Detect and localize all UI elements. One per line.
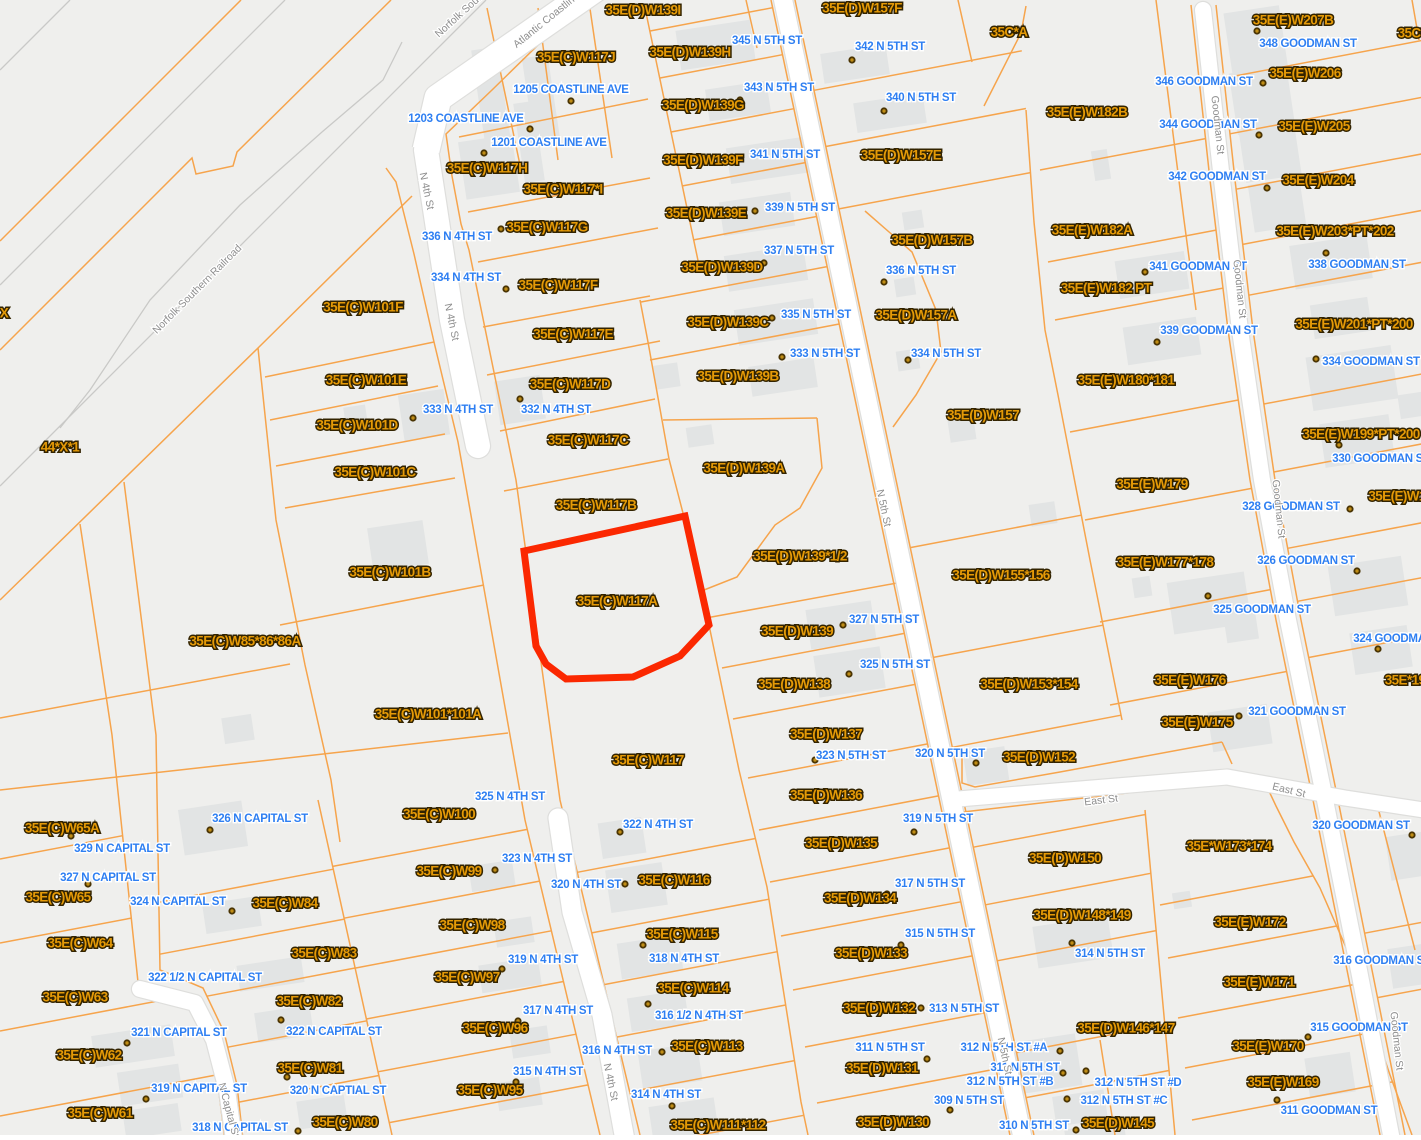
svg-text:35E(D)W139F: 35E(D)W139F xyxy=(663,153,743,168)
svg-text:35E(D)W133: 35E(D)W133 xyxy=(835,946,908,961)
svg-text:333 N 4TH ST: 333 N 4TH ST xyxy=(423,404,493,416)
svg-text:35E(C)W101B: 35E(C)W101B xyxy=(349,565,431,580)
svg-text:311 GOODMAN ST: 311 GOODMAN ST xyxy=(1281,1105,1378,1117)
svg-text:35E(D)W157B: 35E(D)W157B xyxy=(891,233,973,248)
svg-text:325 GOODMAN ST: 325 GOODMAN ST xyxy=(1213,604,1311,616)
svg-text:324 GOODMAN ST: 324 GOODMAN ST xyxy=(1353,633,1421,645)
svg-text:35E(C)W98: 35E(C)W98 xyxy=(439,918,505,933)
svg-text:35E(C)W101*101A: 35E(C)W101*101A xyxy=(375,707,482,722)
svg-text:35E(C)W117H: 35E(C)W117H xyxy=(447,161,527,176)
svg-text:312 N 5TH ST #B: 312 N 5TH ST #B xyxy=(967,1076,1054,1088)
svg-text:35E(D)W155*156: 35E(D)W155*156 xyxy=(952,568,1050,583)
svg-text:320 N CAPTIAL ST: 320 N CAPTIAL ST xyxy=(290,1085,387,1097)
svg-text:35E(E)W179: 35E(E)W179 xyxy=(1116,477,1187,492)
svg-text:35E(D)W137: 35E(D)W137 xyxy=(790,727,862,742)
svg-text:334 N 5TH ST: 334 N 5TH ST xyxy=(911,348,981,360)
svg-text:309 N 5TH ST: 309 N 5TH ST xyxy=(934,1095,1004,1107)
svg-text:343 N 5TH ST: 343 N 5TH ST xyxy=(744,82,814,94)
svg-text:35E(C)W113: 35E(C)W113 xyxy=(671,1039,743,1054)
svg-text:35E(C)W117G: 35E(C)W117G xyxy=(506,220,587,235)
svg-text:334 N 4TH ST: 334 N 4TH ST xyxy=(431,272,501,284)
svg-text:322 N 4TH ST: 322 N 4TH ST xyxy=(623,819,693,831)
svg-text:336 N 5TH ST: 336 N 5TH ST xyxy=(886,265,956,277)
svg-text:326 N CAPITAL ST: 326 N CAPITAL ST xyxy=(212,813,308,825)
svg-text:35E(D)W139B: 35E(D)W139B xyxy=(697,369,779,384)
svg-text:35E(C)W61: 35E(C)W61 xyxy=(67,1106,133,1121)
svg-text:325 N 4TH ST: 325 N 4TH ST xyxy=(475,791,545,803)
svg-text:35E(E)W176: 35E(E)W176 xyxy=(1154,673,1226,688)
svg-text:327 N CAPITAL ST: 327 N CAPITAL ST xyxy=(60,872,156,884)
svg-text:35E*W173*174: 35E*W173*174 xyxy=(1186,839,1272,854)
svg-text:35E(D)W157F: 35E(D)W157F xyxy=(822,1,902,16)
svg-text:324 N CAPITAL ST: 324 N CAPITAL ST xyxy=(130,896,226,908)
svg-text:35E(C)W65: 35E(C)W65 xyxy=(25,890,91,905)
svg-text:329 N CAPITAL ST: 329 N CAPITAL ST xyxy=(74,843,170,855)
svg-text:330 GOODMAN ST: 330 GOODMAN ST xyxy=(1332,453,1421,465)
svg-text:322 N CAPITAL ST: 322 N CAPITAL ST xyxy=(286,1026,382,1038)
svg-text:319 N CAPITAL ST: 319 N CAPITAL ST xyxy=(151,1083,247,1095)
svg-text:35E(C)W95: 35E(C)W95 xyxy=(457,1083,523,1098)
svg-text:35C*A: 35C*A xyxy=(991,25,1029,40)
svg-text:35E(D)W157: 35E(D)W157 xyxy=(947,408,1019,423)
svg-text:339 GOODMAN ST: 339 GOODMAN ST xyxy=(1160,325,1258,337)
svg-text:35E(D)W134: 35E(D)W134 xyxy=(824,891,897,906)
svg-text:35E(C)W84: 35E(C)W84 xyxy=(252,896,318,911)
svg-text:323 N 4TH ST: 323 N 4TH ST xyxy=(502,853,572,865)
svg-text:35E(C)W111*112: 35E(C)W111*112 xyxy=(670,1118,765,1133)
svg-text:336 N 4TH ST: 336 N 4TH ST xyxy=(422,231,492,243)
svg-text:35E(E)W182B: 35E(E)W182B xyxy=(1047,105,1128,120)
svg-text:320 N 4TH ST: 320 N 4TH ST xyxy=(551,879,621,891)
svg-text:321 N CAPITAL ST: 321 N CAPITAL ST xyxy=(131,1027,227,1039)
svg-text:35E(E)W199*PT*200: 35E(E)W199*PT*200 xyxy=(1302,427,1419,442)
svg-text:316 1/2 N 4TH ST: 316 1/2 N 4TH ST xyxy=(655,1010,743,1022)
svg-text:341 N 5TH ST: 341 N 5TH ST xyxy=(750,149,820,161)
svg-text:35E*1946: 35E*1946 xyxy=(1385,673,1421,688)
svg-text:35E(D)W130: 35E(D)W130 xyxy=(857,1115,929,1130)
svg-text:310 N 5TH ST: 310 N 5TH ST xyxy=(999,1120,1069,1132)
svg-text:35E(C)W117*I: 35E(C)W117*I xyxy=(523,182,602,197)
svg-text:X: X xyxy=(0,306,9,321)
svg-text:35E(C)W100: 35E(C)W100 xyxy=(403,807,475,822)
svg-text:35C*A: 35C*A xyxy=(1398,26,1421,41)
svg-text:35E(D)W145: 35E(D)W145 xyxy=(1082,1116,1155,1131)
svg-text:35E(D)W157E: 35E(D)W157E xyxy=(861,148,942,163)
svg-text:35E(E)W205: 35E(E)W205 xyxy=(1278,119,1350,134)
svg-text:35E(C)W101D: 35E(C)W101D xyxy=(316,418,398,433)
svg-text:35E(E)W169: 35E(E)W169 xyxy=(1247,1075,1318,1090)
svg-text:35E(C)W115: 35E(C)W115 xyxy=(646,927,718,942)
svg-text:318 N 4TH ST: 318 N 4TH ST xyxy=(649,953,719,965)
svg-text:326 GOODMAN ST: 326 GOODMAN ST xyxy=(1257,555,1355,567)
svg-text:317 N 4TH ST: 317 N 4TH ST xyxy=(523,1005,593,1017)
svg-text:35E(E)W201*PT*200: 35E(E)W201*PT*200 xyxy=(1295,317,1412,332)
svg-text:35E(C)W64: 35E(C)W64 xyxy=(47,936,113,951)
svg-text:35E(C)W114: 35E(C)W114 xyxy=(657,981,729,996)
svg-text:319 N 5TH ST: 319 N 5TH ST xyxy=(903,813,973,825)
svg-text:1201 COASTLINE AVE: 1201 COASTLINE AVE xyxy=(491,137,607,149)
svg-text:35E(C)W117C: 35E(C)W117C xyxy=(548,433,629,448)
svg-text:35E(E)W204: 35E(E)W204 xyxy=(1282,173,1354,188)
svg-text:35E(C)W97: 35E(C)W97 xyxy=(434,970,499,985)
svg-text:44*X*1: 44*X*1 xyxy=(41,440,81,455)
svg-text:315 N 5TH ST: 315 N 5TH ST xyxy=(905,928,975,940)
svg-text:35E(D)W136: 35E(D)W136 xyxy=(790,788,863,803)
svg-text:35E(C)W81: 35E(C)W81 xyxy=(277,1061,343,1076)
svg-text:344 GOODMAN ST: 344 GOODMAN ST xyxy=(1159,119,1257,131)
svg-text:35E(C)W117F: 35E(C)W117F xyxy=(519,278,598,293)
svg-text:339 N 5TH ST: 339 N 5TH ST xyxy=(765,202,835,214)
svg-text:312 N 5TH ST #C: 312 N 5TH ST #C xyxy=(1081,1095,1168,1107)
svg-text:35E(E)W203*PT*202: 35E(E)W203*PT*202 xyxy=(1276,224,1393,239)
svg-text:35E(D)W139: 35E(D)W139 xyxy=(761,624,833,639)
svg-text:314 N 5TH ST: 314 N 5TH ST xyxy=(1075,948,1145,960)
svg-text:335 N 5TH ST: 335 N 5TH ST xyxy=(781,309,851,321)
svg-text:35E(C)W116: 35E(C)W116 xyxy=(638,873,710,888)
svg-text:35E(C)W65A: 35E(C)W65A xyxy=(25,821,100,836)
svg-text:35E(D)W138: 35E(D)W138 xyxy=(758,677,831,692)
svg-text:35E(E)W206: 35E(E)W206 xyxy=(1269,66,1341,81)
svg-text:35E(C)W83: 35E(C)W83 xyxy=(291,946,357,961)
svg-text:35E(D)W139*1/2: 35E(D)W139*1/2 xyxy=(753,549,847,564)
svg-text:328 GOODMAN ST: 328 GOODMAN ST xyxy=(1242,501,1340,513)
svg-text:327 N 5TH ST: 327 N 5TH ST xyxy=(849,614,919,626)
svg-text:322 1/2 N CAPITAL ST: 322 1/2 N CAPITAL ST xyxy=(148,972,262,984)
svg-text:320 GOODMAN ST: 320 GOODMAN ST xyxy=(1312,820,1410,832)
svg-text:321 GOODMAN ST: 321 GOODMAN ST xyxy=(1248,706,1346,718)
svg-text:35E(D)W135: 35E(D)W135 xyxy=(805,836,878,851)
svg-text:35E(E)W182A: 35E(E)W182A xyxy=(1052,223,1133,238)
svg-text:325 N 5TH ST: 325 N 5TH ST xyxy=(860,659,930,671)
svg-text:35E(D)W139H: 35E(D)W139H xyxy=(649,45,730,60)
svg-text:338 GOODMAN ST: 338 GOODMAN ST xyxy=(1308,259,1406,271)
svg-text:315 N 4TH ST: 315 N 4TH ST xyxy=(513,1066,583,1078)
svg-text:35E(D)W139A: 35E(D)W139A xyxy=(703,461,785,476)
svg-text:35E(C)W101E: 35E(C)W101E xyxy=(326,373,407,388)
svg-text:320 N 5TH ST: 320 N 5TH ST xyxy=(915,748,985,760)
svg-text:35E(D)W139D: 35E(D)W139D xyxy=(681,260,763,275)
svg-text:35E(D)W139E: 35E(D)W139E xyxy=(666,206,747,221)
svg-text:323 N 5TH ST: 323 N 5TH ST xyxy=(816,750,886,762)
svg-text:35E(D)W150: 35E(D)W150 xyxy=(1029,851,1101,866)
svg-text:317 N 5TH ST: 317 N 5TH ST xyxy=(895,878,965,890)
svg-text:35E(C)W117D: 35E(C)W117D xyxy=(530,377,611,392)
svg-text:35E(D)W139I: 35E(D)W139I xyxy=(605,3,680,18)
svg-text:35E(C)W82: 35E(C)W82 xyxy=(276,994,341,1009)
svg-text:319 N 4TH ST: 319 N 4TH ST xyxy=(508,954,578,966)
svg-text:35E(E)W177*178: 35E(E)W177*178 xyxy=(1117,555,1215,570)
svg-text:316 GOODMAN ST: 316 GOODMAN ST xyxy=(1333,955,1421,967)
svg-text:313 N 5TH ST: 313 N 5TH ST xyxy=(929,1003,999,1015)
svg-text:35E(E)W170: 35E(E)W170 xyxy=(1232,1039,1303,1054)
svg-text:340 N 5TH ST: 340 N 5TH ST xyxy=(886,92,956,104)
svg-text:332 N 4TH ST: 332 N 4TH ST xyxy=(521,404,591,416)
svg-text:1203 COASTLINE AVE: 1203 COASTLINE AVE xyxy=(408,113,524,125)
svg-text:1205 COASTLINE AVE: 1205 COASTLINE AVE xyxy=(513,84,629,96)
svg-text:316 N 4TH ST: 316 N 4TH ST xyxy=(582,1045,652,1057)
svg-text:35E(D)W139G: 35E(D)W139G xyxy=(662,98,744,113)
svg-text:35E(E)W175: 35E(E)W175 xyxy=(1161,715,1233,730)
svg-text:35E(D)W139C: 35E(D)W139C xyxy=(687,315,769,330)
svg-text:35E(C)W99: 35E(C)W99 xyxy=(416,864,481,879)
svg-text:345 N 5TH ST: 345 N 5TH ST xyxy=(732,35,802,47)
svg-text:337 N 5TH ST: 337 N 5TH ST xyxy=(764,245,834,257)
svg-text:35E(C)W62: 35E(C)W62 xyxy=(56,1048,121,1063)
svg-text:35E(D)W131: 35E(D)W131 xyxy=(846,1061,919,1076)
svg-text:342 N 5TH ST: 342 N 5TH ST xyxy=(855,41,925,53)
svg-text:314 N 4TH ST: 314 N 4TH ST xyxy=(631,1089,701,1101)
svg-text:35E(C)W85*86*86A: 35E(C)W85*86*86A xyxy=(189,634,301,649)
svg-text:35E(E)W182 PT: 35E(E)W182 PT xyxy=(1061,281,1153,296)
svg-text:35E(E)W180*181: 35E(E)W180*181 xyxy=(1078,373,1176,388)
svg-text:311 N 5TH ST: 311 N 5TH ST xyxy=(855,1042,925,1054)
svg-text:35E(C)W117B: 35E(C)W117B xyxy=(556,498,637,513)
svg-text:35E(C)W117: 35E(C)W117 xyxy=(612,753,683,768)
svg-text:35E(C)W101C: 35E(C)W101C xyxy=(334,465,416,480)
svg-text:35E(D)W152: 35E(D)W152 xyxy=(1003,750,1075,765)
svg-text:35E(D)W148*149: 35E(D)W148*149 xyxy=(1033,908,1130,923)
svg-text:35E(C)W117E: 35E(C)W117E xyxy=(533,327,613,342)
svg-text:35E(C)W101F: 35E(C)W101F xyxy=(323,300,403,315)
svg-text:35E(D)W153*154: 35E(D)W153*154 xyxy=(980,677,1078,692)
svg-text:348 GOODMAN ST: 348 GOODMAN ST xyxy=(1259,38,1357,50)
svg-text:35E(D)W157A: 35E(D)W157A xyxy=(875,308,957,323)
svg-text:35E(C)W63: 35E(C)W63 xyxy=(42,990,108,1005)
svg-text:35E(C)W117J: 35E(C)W117J xyxy=(537,50,615,65)
svg-text:35E(E)W198: 35E(E)W198 xyxy=(1368,489,1421,504)
svg-text:35E(C)W80: 35E(C)W80 xyxy=(312,1115,377,1130)
svg-text:346 GOODMAN ST: 346 GOODMAN ST xyxy=(1155,76,1253,88)
svg-text:312 N 5TH ST #D: 312 N 5TH ST #D xyxy=(1095,1077,1182,1089)
svg-text:333 N 5TH ST: 333 N 5TH ST xyxy=(790,348,860,360)
svg-text:334 GOODMAN ST: 334 GOODMAN ST xyxy=(1322,356,1420,368)
svg-text:35E(C)W117A: 35E(C)W117A xyxy=(577,594,658,609)
svg-text:35E(E)W171: 35E(E)W171 xyxy=(1223,975,1295,990)
svg-text:35E(E)W172: 35E(E)W172 xyxy=(1214,915,1285,930)
svg-text:35E(D)W132: 35E(D)W132 xyxy=(843,1001,915,1016)
svg-text:342 GOODMAN ST: 342 GOODMAN ST xyxy=(1168,171,1266,183)
svg-text:35E(E)W207B: 35E(E)W207B xyxy=(1253,13,1334,28)
svg-text:35E(C)W96: 35E(C)W96 xyxy=(462,1021,528,1036)
svg-text:35E(D)W146*147: 35E(D)W146*147 xyxy=(1077,1021,1174,1036)
